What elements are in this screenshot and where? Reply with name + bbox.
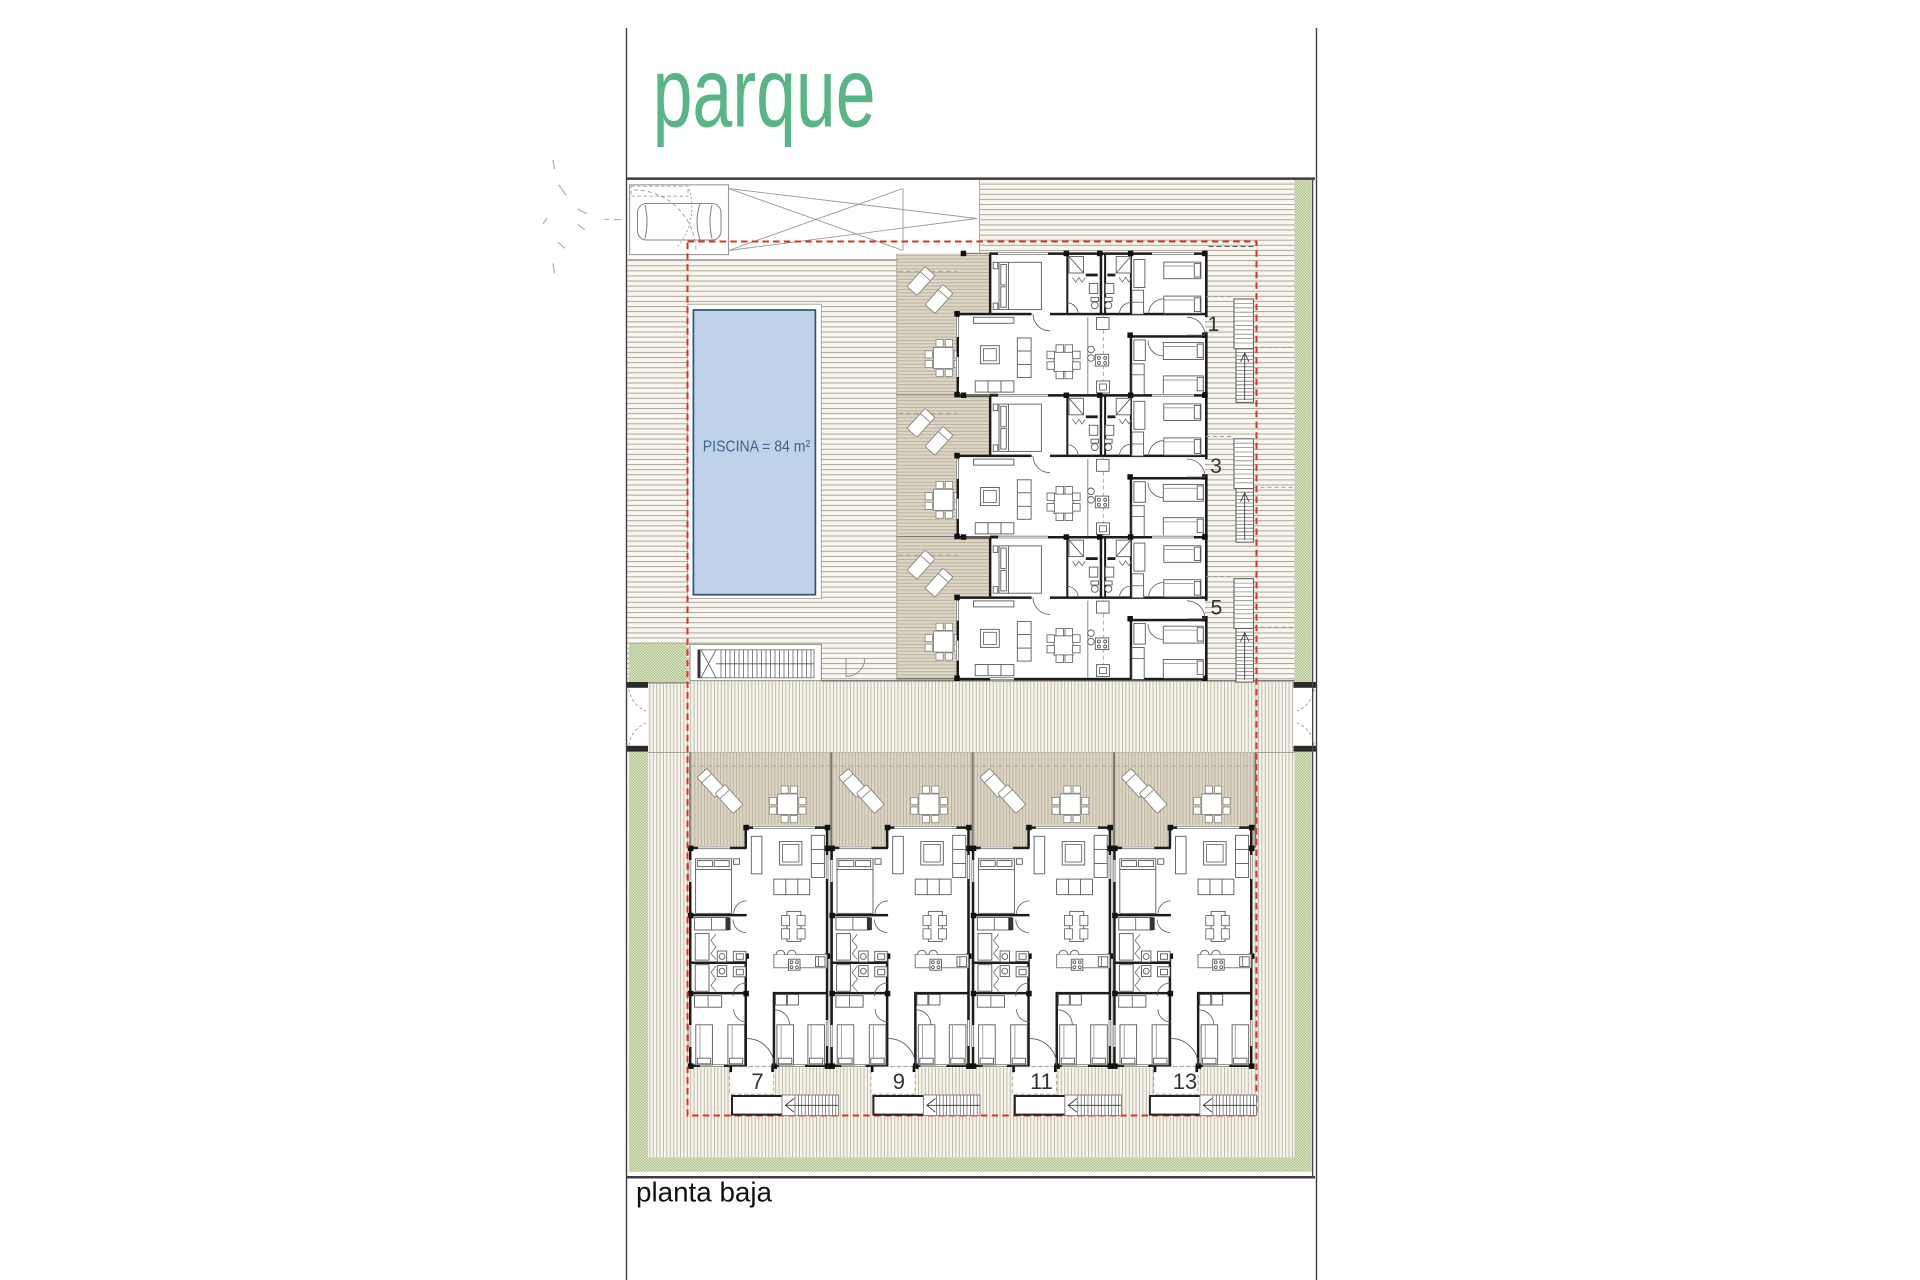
svg-text:parque: parque bbox=[653, 38, 876, 148]
svg-text:9: 9 bbox=[893, 1069, 905, 1094]
svg-text:3: 3 bbox=[1210, 455, 1222, 478]
svg-text:5: 5 bbox=[1211, 597, 1223, 620]
svg-text:PISCINA = 84 m²: PISCINA = 84 m² bbox=[703, 438, 810, 456]
svg-text:13: 13 bbox=[1173, 1069, 1197, 1094]
svg-text:7: 7 bbox=[751, 1069, 763, 1094]
svg-text:planta baja: planta baja bbox=[636, 1177, 773, 1208]
svg-text:1: 1 bbox=[1208, 313, 1220, 336]
svg-text:11: 11 bbox=[1030, 1069, 1053, 1094]
